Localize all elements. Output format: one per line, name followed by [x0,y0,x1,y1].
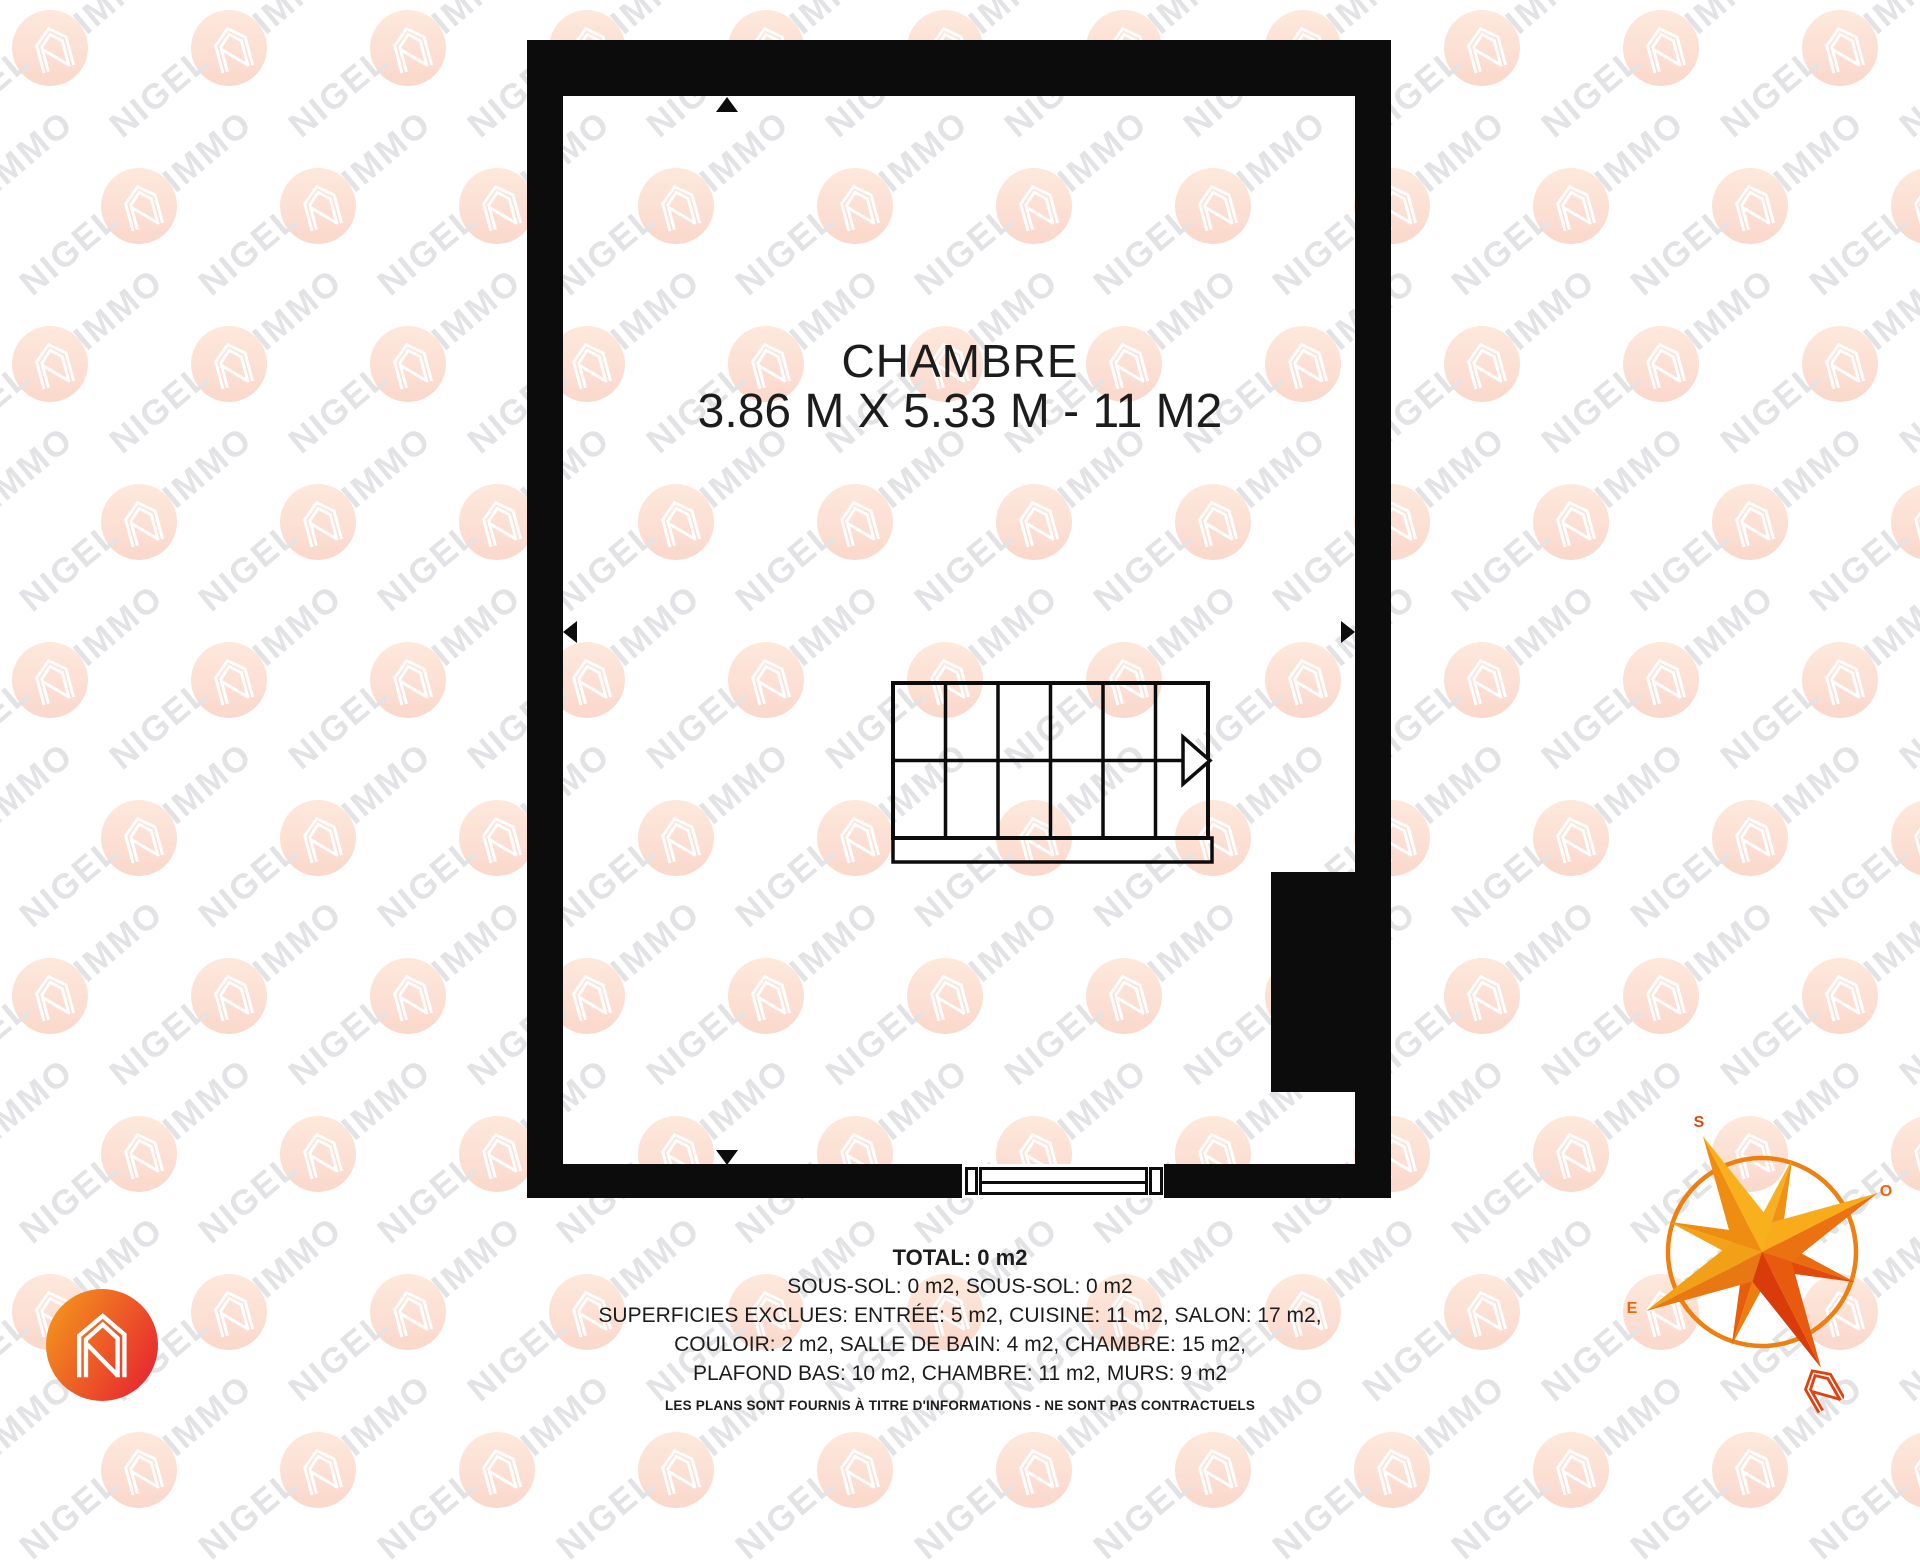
dimension-arrow-down-icon [716,1150,738,1165]
watermark-word-nigel: NIGEL [1802,198,1917,304]
window-symbol [962,1164,1164,1198]
watermark-word-nigel: NIGEL [12,1146,127,1252]
watermark-word-nigel: NIGEL [1892,672,1920,778]
window-frame [979,1167,1148,1195]
stair-direction-arrow-icon [1183,737,1210,784]
watermark-word-nigel: NIGEL [1623,514,1738,620]
watermark-word-immo: IMMO [1141,893,1246,990]
watermark-word-immo: IMMO [693,735,798,832]
watermark-word-nigel: NIGEL [1713,356,1828,462]
watermark-word-immo: IMMO [1230,103,1335,200]
watermark-word-immo: IMMO [604,893,709,990]
watermark-word-immo: IMMO [783,577,888,674]
watermark-word-immo: IMMO [1051,103,1156,200]
watermark-word-immo: IMMO [156,735,261,832]
room-dimensions: 3.86 M X 5.33 M - 11 M2 [527,384,1393,439]
watermark-word-immo: IMMO [67,261,172,358]
watermark-word-nigel: NIGEL [1534,356,1649,462]
watermark-word-immo: IMMO [693,103,798,200]
watermark-word-nigel: NIGEL [1713,988,1828,1094]
watermark-word-immo: IMMO [872,1051,977,1148]
watermark-word-nigel: NIGEL [12,830,127,936]
wall-right [1355,40,1391,1198]
watermark-word-immo: IMMO [335,419,440,516]
watermark-word-nigel: NIGEL [1534,672,1649,778]
watermark-word-nigel: NIGEL [370,830,485,936]
wall-left [527,40,563,1198]
watermark-word-immo: IMMO [1499,893,1604,990]
watermark-word-nigel: NIGEL [639,672,754,778]
watermark-word-nigel: NIGEL [549,198,664,304]
watermark-word-immo: IMMO [1588,735,1693,832]
watermark-word-nigel: NIGEL [191,830,306,936]
watermark-word-nigel: NIGEL [1623,830,1738,936]
dimension-arrow-up-icon [716,97,738,112]
compass-label-east: E [1627,1300,1638,1318]
watermark-word-nigel: NIGEL [281,988,396,1094]
watermark-word-nigel: NIGEL [549,830,664,936]
watermark-word-nigel: NIGEL [1623,1462,1738,1568]
watermark-word-nigel: NIGEL [191,514,306,620]
watermark-word-immo: IMMO [67,577,172,674]
watermark-word-immo: IMMO [246,261,351,358]
watermark-word-immo: IMMO [67,893,172,990]
watermark-word-nigel: NIGEL [281,672,396,778]
floorplan-page: { "plan": { "room_label": "CHAMBRE", "ro… [0,0,1920,1440]
watermark-word-immo: IMMO [1499,261,1604,358]
watermark-word-nigel: NIGEL [728,830,843,936]
watermark-word-nigel: NIGEL [1086,514,1201,620]
watermark-word-immo: IMMO [1409,1051,1514,1148]
watermark-word-nigel: NIGEL [12,198,127,304]
watermark-word-nigel: NIGEL [281,356,396,462]
watermark-word-immo: IMMO [156,1051,261,1148]
watermark-word-immo: IMMO [1767,419,1872,516]
room-label: CHAMBRE [527,334,1393,388]
watermark-word-immo: IMMO [1588,419,1693,516]
watermark-word-immo: IMMO [962,577,1067,674]
watermark-word-nigel: NIGEL [907,1462,1022,1568]
watermark-word-immo: IMMO [0,103,81,200]
watermark-word-immo: IMMO [962,893,1067,990]
dimension-arrow-left-icon [563,621,577,643]
watermark-word-nigel: NIGEL [639,988,754,1094]
watermark-word-nigel: NIGEL [370,514,485,620]
watermark-word-immo: IMMO [0,419,81,516]
watermark-word-nigel: NIGEL [1444,1146,1559,1252]
watermark-word-nigel: NIGEL [1444,514,1559,620]
watermark-word-immo: IMMO [1141,577,1246,674]
watermark-word-immo: IMMO [156,419,261,516]
watermark-word-immo: IMMO [425,261,530,358]
watermark-word-nigel: NIGEL [1802,514,1917,620]
watermark-word-nigel: NIGEL [102,40,217,146]
watermark-word-immo: IMMO [1678,893,1783,990]
watermark-word-nigel: NIGEL [1892,356,1920,462]
watermark-word-immo: IMMO [425,893,530,990]
compass-label-west: O [1880,1183,1892,1201]
watermark-word-nigel: NIGEL [102,988,217,1094]
watermark-word-nigel: NIGEL [281,40,396,146]
watermark-word-nigel: NIGEL [997,988,1112,1094]
wall-top [527,40,1391,96]
watermark-word-immo: IMMO [1409,103,1514,200]
watermark-word-immo: IMMO [604,577,709,674]
watermark-word-nigel: NIGEL [1713,40,1828,146]
wall-pillar-block [1271,872,1359,1092]
watermark-word-immo: IMMO [335,1051,440,1148]
watermark-word-immo: IMMO [1051,1051,1156,1148]
watermark-word-nigel: NIGEL [1892,40,1920,146]
watermark-word-immo: IMMO [246,893,351,990]
compass-rose: S O E [1600,1095,1920,1425]
watermark-word-nigel: NIGEL [1444,198,1559,304]
watermark-word-nigel: NIGEL [1086,1462,1201,1568]
watermark-word-nigel: NIGEL [549,514,664,620]
watermark-word-immo: IMMO [1678,577,1783,674]
watermark-word-immo: IMMO [425,577,530,674]
watermark-word-immo: IMMO [783,893,888,990]
watermark-word-immo: IMMO [1409,419,1514,516]
watermark-word-immo: IMMO [1409,735,1514,832]
watermark-word-nigel: NIGEL [191,1462,306,1568]
watermark-word-immo: IMMO [156,103,261,200]
dimension-arrow-right-icon [1341,621,1355,643]
watermark-word-nigel: NIGEL [728,1146,843,1252]
watermark-word-immo: IMMO [0,735,81,832]
watermark-word-immo: IMMO [1767,103,1872,200]
watermark-word-nigel: NIGEL [728,514,843,620]
watermark-word-nigel: NIGEL [1086,198,1201,304]
window-cap-left [965,1167,978,1195]
watermark-word-nigel: NIGEL [191,1146,306,1252]
watermark-word-nigel: NIGEL [1086,1146,1201,1252]
watermark-word-nigel: NIGEL [370,1462,485,1568]
watermark-word-nigel: NIGEL [12,514,127,620]
watermark-word-immo: IMMO [1767,735,1872,832]
watermark-word-nigel: NIGEL [728,1462,843,1568]
watermark-word-immo: IMMO [693,1051,798,1148]
watermark-word-nigel: NIGEL [12,1462,127,1568]
watermark-word-nigel: NIGEL [818,988,933,1094]
watermark-word-nigel: NIGEL [1713,672,1828,778]
watermark-word-nigel: NIGEL [1892,988,1920,1094]
watermark-word-immo: IMMO [1588,103,1693,200]
watermark-word-nigel: NIGEL [549,1146,664,1252]
brand-logo [45,1288,159,1402]
watermark-word-nigel: NIGEL [1265,1462,1380,1568]
watermark-word-nigel: NIGEL [907,514,1022,620]
watermark-word-nigel: NIGEL [728,198,843,304]
watermark-word-nigel: NIGEL [370,1146,485,1252]
watermark-word-nigel: NIGEL [1534,988,1649,1094]
watermark-word-immo: IMMO [335,103,440,200]
watermark-word-immo: IMMO [0,1051,81,1148]
watermark-word-immo: IMMO [1678,261,1783,358]
watermark-word-nigel: NIGEL [370,198,485,304]
watermark-word-immo: IMMO [1230,735,1335,832]
watermark-word-nigel: NIGEL [1802,830,1917,936]
watermark-word-nigel: NIGEL [1444,1462,1559,1568]
window-cap-right [1149,1167,1163,1195]
watermark-word-nigel: NIGEL [907,1146,1022,1252]
compass-north-glyph-icon [1796,1361,1844,1417]
watermark-word-immo: IMMO [872,103,977,200]
watermark-word-nigel: NIGEL [1623,198,1738,304]
watermark-word-nigel: NIGEL [1444,830,1559,936]
watermark-word-nigel: NIGEL [907,198,1022,304]
watermark-word-nigel: NIGEL [102,672,217,778]
watermark-word-immo: IMMO [1499,577,1604,674]
watermark-word-nigel: NIGEL [191,198,306,304]
window-divider [982,1181,1145,1184]
watermark-word-immo: IMMO [335,735,440,832]
staircase-symbol [891,681,1217,867]
watermark-word-nigel: NIGEL [549,1462,664,1568]
watermark-word-immo: IMMO [246,577,351,674]
wall-bottom [527,1164,1391,1198]
watermark-word-nigel: NIGEL [1802,1462,1917,1568]
compass-label-south: S [1694,1114,1705,1132]
watermark-word-nigel: NIGEL [1534,40,1649,146]
watermark-word-nigel: NIGEL [102,356,217,462]
